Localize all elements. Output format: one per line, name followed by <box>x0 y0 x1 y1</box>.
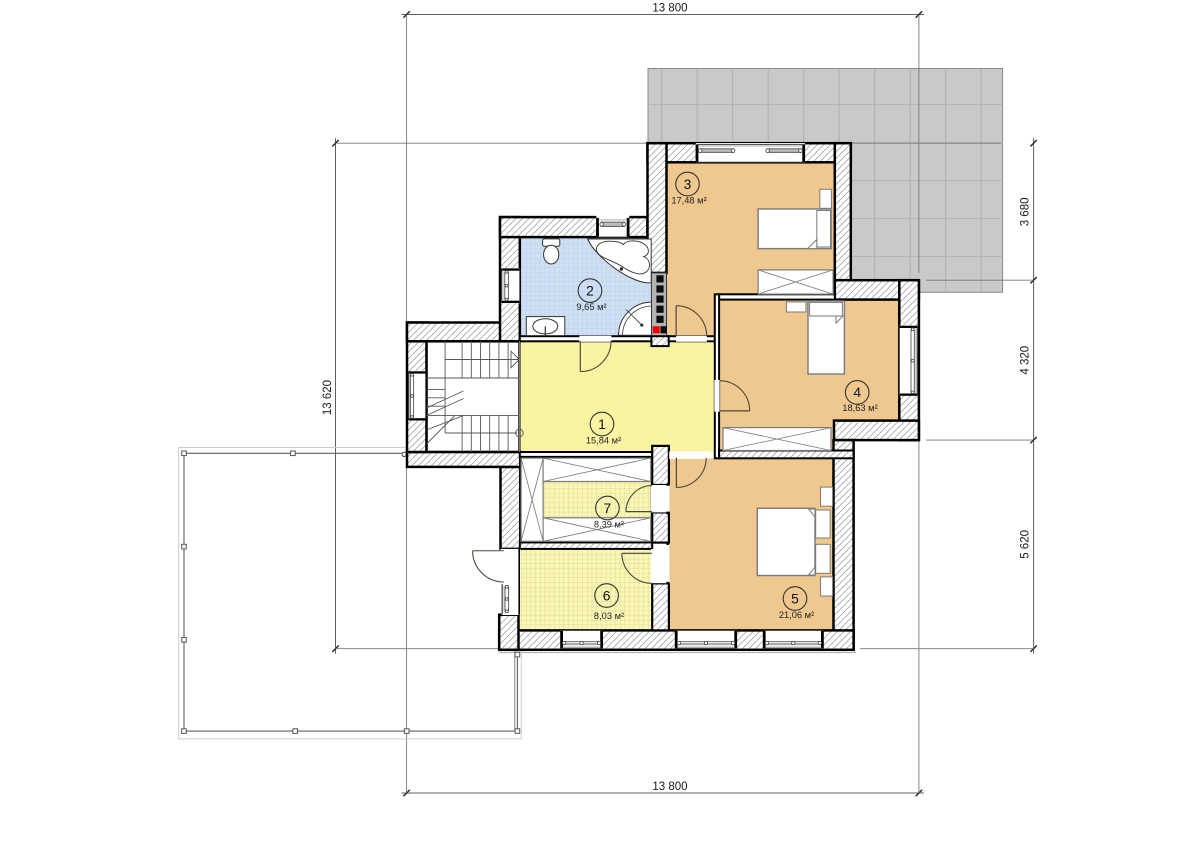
svg-text:17,48 м²: 17,48 м² <box>671 196 706 206</box>
svg-text:9,65 м²: 9,65 м² <box>576 302 606 312</box>
svg-text:8,39 м²: 8,39 м² <box>594 520 624 530</box>
svg-text:7: 7 <box>604 501 612 516</box>
svg-text:3 680: 3 680 <box>1020 198 1032 227</box>
svg-text:8,03 м²: 8,03 м² <box>594 611 624 621</box>
svg-text:5 620: 5 620 <box>1020 530 1032 559</box>
svg-text:21,06 м²: 21,06 м² <box>779 610 814 620</box>
svg-text:1: 1 <box>598 417 606 432</box>
svg-text:4: 4 <box>853 385 861 400</box>
svg-text:13 620: 13 620 <box>322 380 334 415</box>
svg-text:13 800: 13 800 <box>652 3 687 15</box>
svg-text:5: 5 <box>791 591 799 606</box>
svg-text:13 800: 13 800 <box>652 781 687 793</box>
svg-text:6: 6 <box>603 588 611 603</box>
svg-text:15,84 м²: 15,84 м² <box>586 436 621 446</box>
svg-text:18,63 м²: 18,63 м² <box>842 403 877 413</box>
svg-text:4 320: 4 320 <box>1020 346 1032 375</box>
svg-text:3: 3 <box>684 177 692 192</box>
svg-text:2: 2 <box>586 283 594 298</box>
